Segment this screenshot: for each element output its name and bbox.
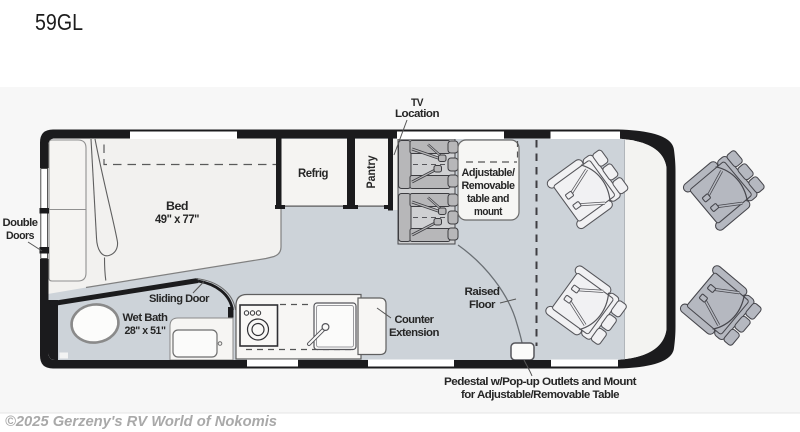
svg-text:Refrig: Refrig <box>298 166 328 180</box>
svg-text:49" x 77": 49" x 77" <box>155 212 199 226</box>
svg-text:Wet Bath: Wet Bath <box>123 312 169 324</box>
svg-text:table and: table and <box>467 193 509 205</box>
svg-text:Location: Location <box>395 108 440 120</box>
svg-text:Sliding Door: Sliding Door <box>149 293 210 305</box>
svg-text:Removable: Removable <box>462 180 515 192</box>
svg-text:Floor: Floor <box>469 299 496 311</box>
svg-text:Doors: Doors <box>6 230 34 242</box>
svg-text:28" x 51": 28" x 51" <box>125 325 166 337</box>
svg-text:Bed: Bed <box>166 199 188 213</box>
svg-text:©2025 Gerzeny's RV World of No: ©2025 Gerzeny's RV World of Nokomis <box>5 413 277 430</box>
svg-text:Counter: Counter <box>395 314 435 326</box>
svg-text:59GL: 59GL <box>35 9 83 35</box>
svg-text:Pantry: Pantry <box>366 155 378 189</box>
svg-text:Extension: Extension <box>389 327 440 339</box>
svg-text:Raised: Raised <box>465 286 500 298</box>
svg-text:mount: mount <box>474 206 503 218</box>
svg-text:Double: Double <box>3 217 38 229</box>
svg-text:Adjustable/: Adjustable/ <box>462 167 515 179</box>
svg-text:for Adjustable/Removable Table: for Adjustable/Removable Table <box>461 389 619 401</box>
svg-text:Pedestal w/Pop-up Outlets and: Pedestal w/Pop-up Outlets and Mount <box>444 376 637 388</box>
